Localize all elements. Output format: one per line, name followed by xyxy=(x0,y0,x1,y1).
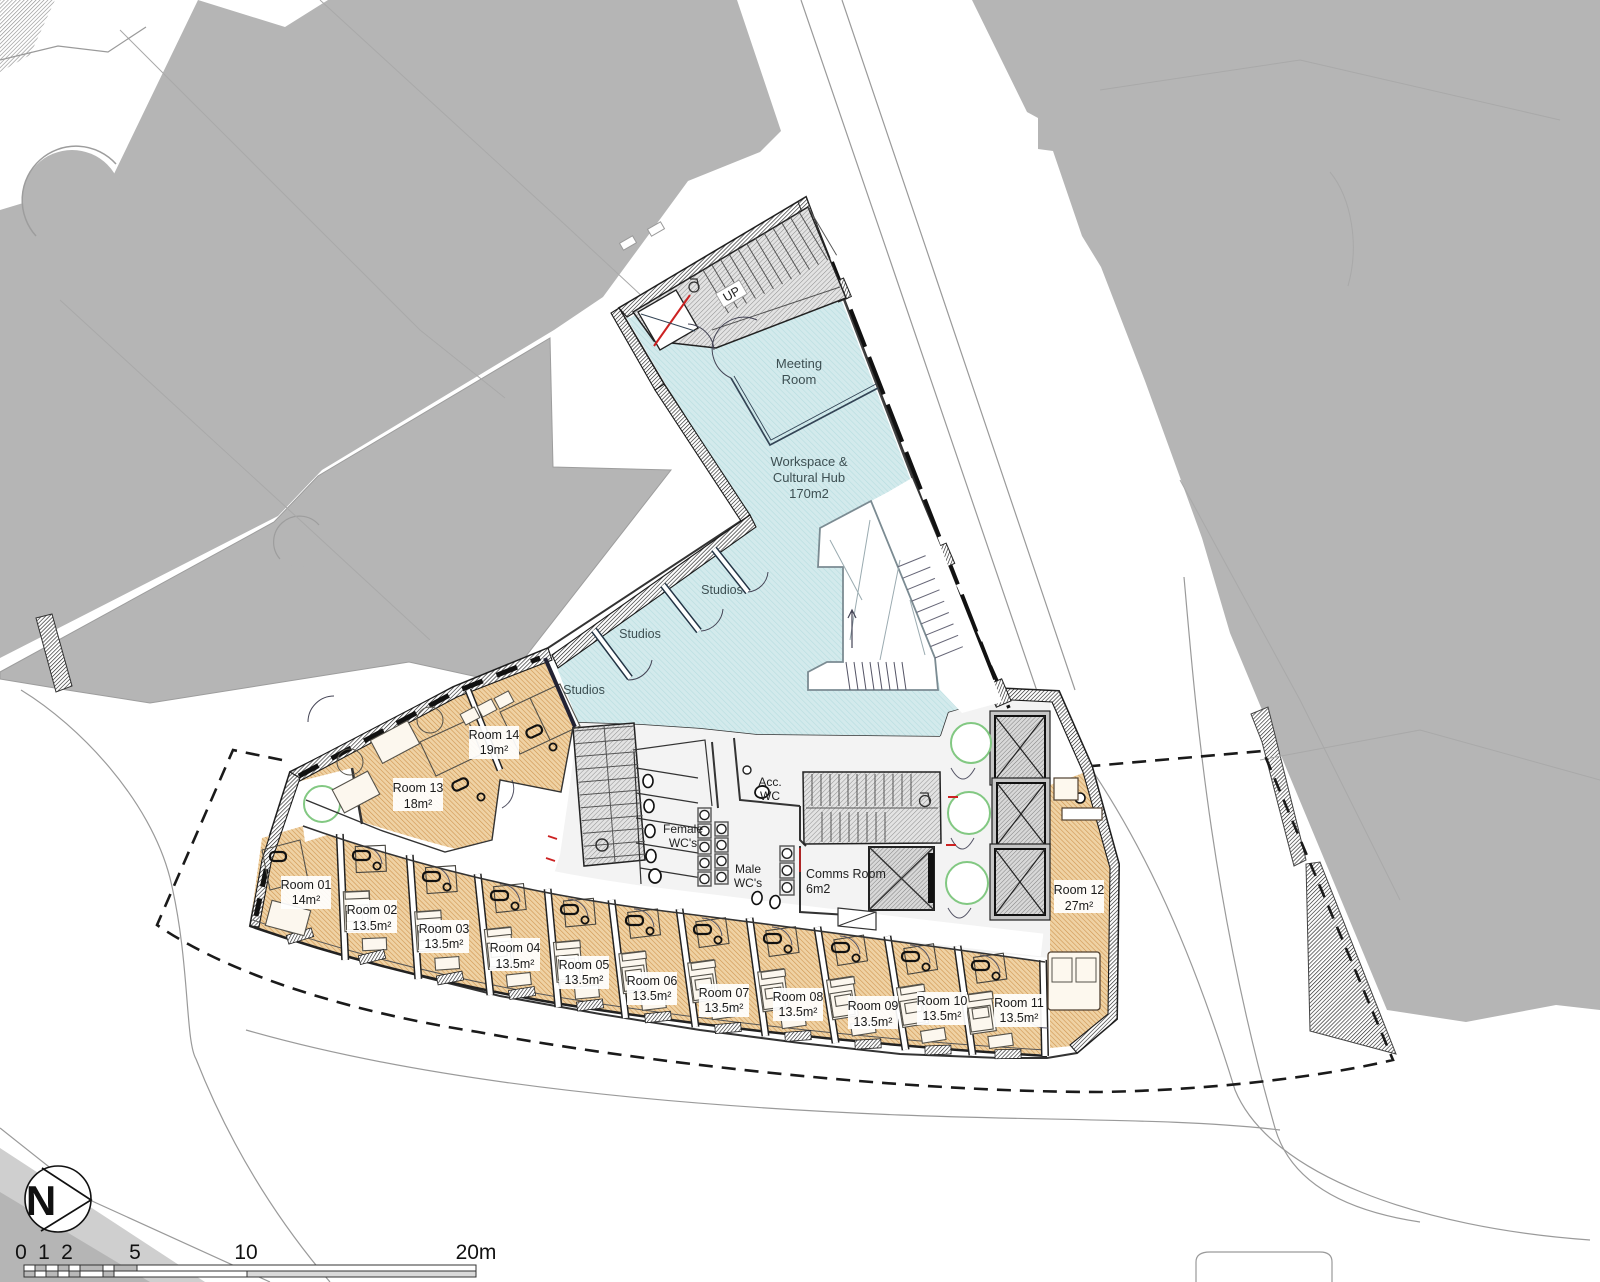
svg-text:170m2: 170m2 xyxy=(789,486,829,501)
svg-text:Room 06: Room 06 xyxy=(627,974,678,988)
svg-text:13.5m²: 13.5m² xyxy=(425,937,464,951)
svg-text:Room 01: Room 01 xyxy=(281,878,332,892)
svg-text:Room 04: Room 04 xyxy=(490,941,541,955)
svg-text:Comms Room: Comms Room xyxy=(806,867,886,881)
svg-text:5: 5 xyxy=(129,1241,141,1264)
svg-text:Room 07: Room 07 xyxy=(699,986,750,1000)
svg-text:Room 03: Room 03 xyxy=(419,922,470,936)
svg-text:Studios: Studios xyxy=(563,683,605,697)
svg-text:13.5m²: 13.5m² xyxy=(496,957,535,971)
svg-text:Studios: Studios xyxy=(619,627,661,641)
svg-text:27m²: 27m² xyxy=(1065,899,1093,913)
svg-text:13.5m²: 13.5m² xyxy=(353,919,392,933)
svg-text:Male: Male xyxy=(735,862,761,876)
svg-text:Workspace &: Workspace & xyxy=(770,454,847,469)
svg-text:13.5m²: 13.5m² xyxy=(779,1005,818,1019)
svg-text:Acc.: Acc. xyxy=(758,775,781,789)
svg-text:Room 11: Room 11 xyxy=(994,996,1044,1010)
svg-text:Room 09: Room 09 xyxy=(848,999,899,1013)
svg-text:6m2: 6m2 xyxy=(806,882,830,896)
svg-text:13.5m²: 13.5m² xyxy=(1000,1011,1039,1025)
svg-text:13.5m²: 13.5m² xyxy=(923,1009,962,1023)
svg-text:13.5m²: 13.5m² xyxy=(854,1015,893,1029)
svg-text:20m: 20m xyxy=(456,1241,497,1264)
svg-text:2: 2 xyxy=(61,1241,73,1264)
svg-text:Meeting: Meeting xyxy=(776,356,822,371)
svg-text:Room 14: Room 14 xyxy=(469,728,520,742)
svg-text:WC's: WC's xyxy=(734,876,762,890)
svg-text:0: 0 xyxy=(15,1241,27,1264)
svg-text:Room 08: Room 08 xyxy=(773,990,824,1004)
svg-text:Room 05: Room 05 xyxy=(559,958,610,972)
svg-text:19m²: 19m² xyxy=(480,743,508,757)
svg-text:Studios: Studios xyxy=(701,583,743,597)
svg-text:13.5m²: 13.5m² xyxy=(565,973,604,987)
svg-text:WC's: WC's xyxy=(669,836,697,850)
svg-text:Room 10: Room 10 xyxy=(917,994,968,1008)
svg-text:13.5m²: 13.5m² xyxy=(633,989,672,1003)
svg-text:N: N xyxy=(26,1177,56,1224)
svg-text:14m²: 14m² xyxy=(292,893,320,907)
svg-text:Room 12: Room 12 xyxy=(1054,883,1105,897)
svg-text:Room 13: Room 13 xyxy=(393,781,444,795)
svg-text:Room 02: Room 02 xyxy=(347,903,398,917)
svg-text:WC: WC xyxy=(760,789,780,803)
svg-text:Female: Female xyxy=(663,822,703,836)
svg-text:13.5m²: 13.5m² xyxy=(705,1001,744,1015)
svg-text:Room: Room xyxy=(782,372,817,387)
svg-text:18m²: 18m² xyxy=(404,797,432,811)
svg-text:10: 10 xyxy=(234,1241,257,1264)
svg-text:Cultural Hub: Cultural Hub xyxy=(773,470,845,485)
svg-text:1: 1 xyxy=(38,1241,50,1264)
